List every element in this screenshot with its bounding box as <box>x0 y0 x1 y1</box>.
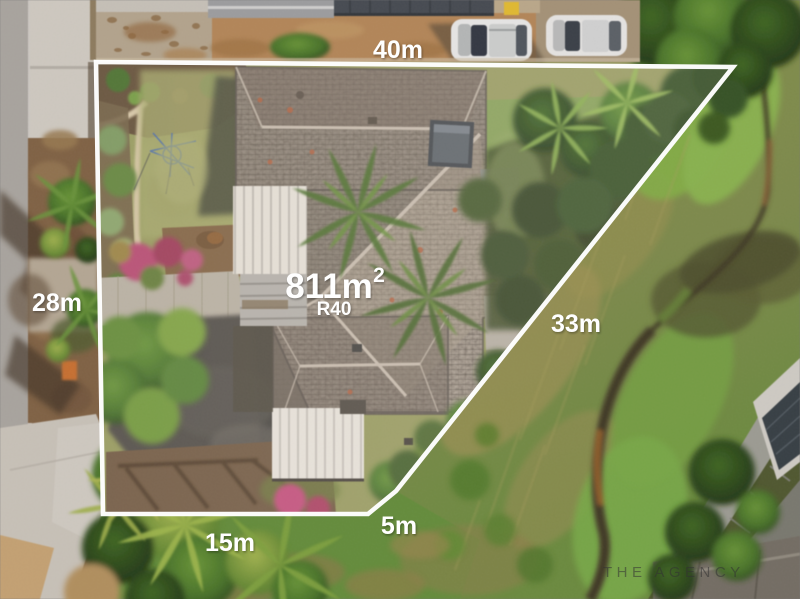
svg-text:33m: 33m <box>551 310 601 338</box>
svg-text:40m: 40m <box>373 36 423 64</box>
svg-text:28m: 28m <box>32 289 82 317</box>
svg-text:R40: R40 <box>317 299 352 320</box>
svg-text:THE AGENCY: THE AGENCY <box>603 564 745 581</box>
svg-text:5m: 5m <box>381 512 417 540</box>
svg-text:2: 2 <box>373 264 385 287</box>
svg-text:15m: 15m <box>205 529 255 557</box>
